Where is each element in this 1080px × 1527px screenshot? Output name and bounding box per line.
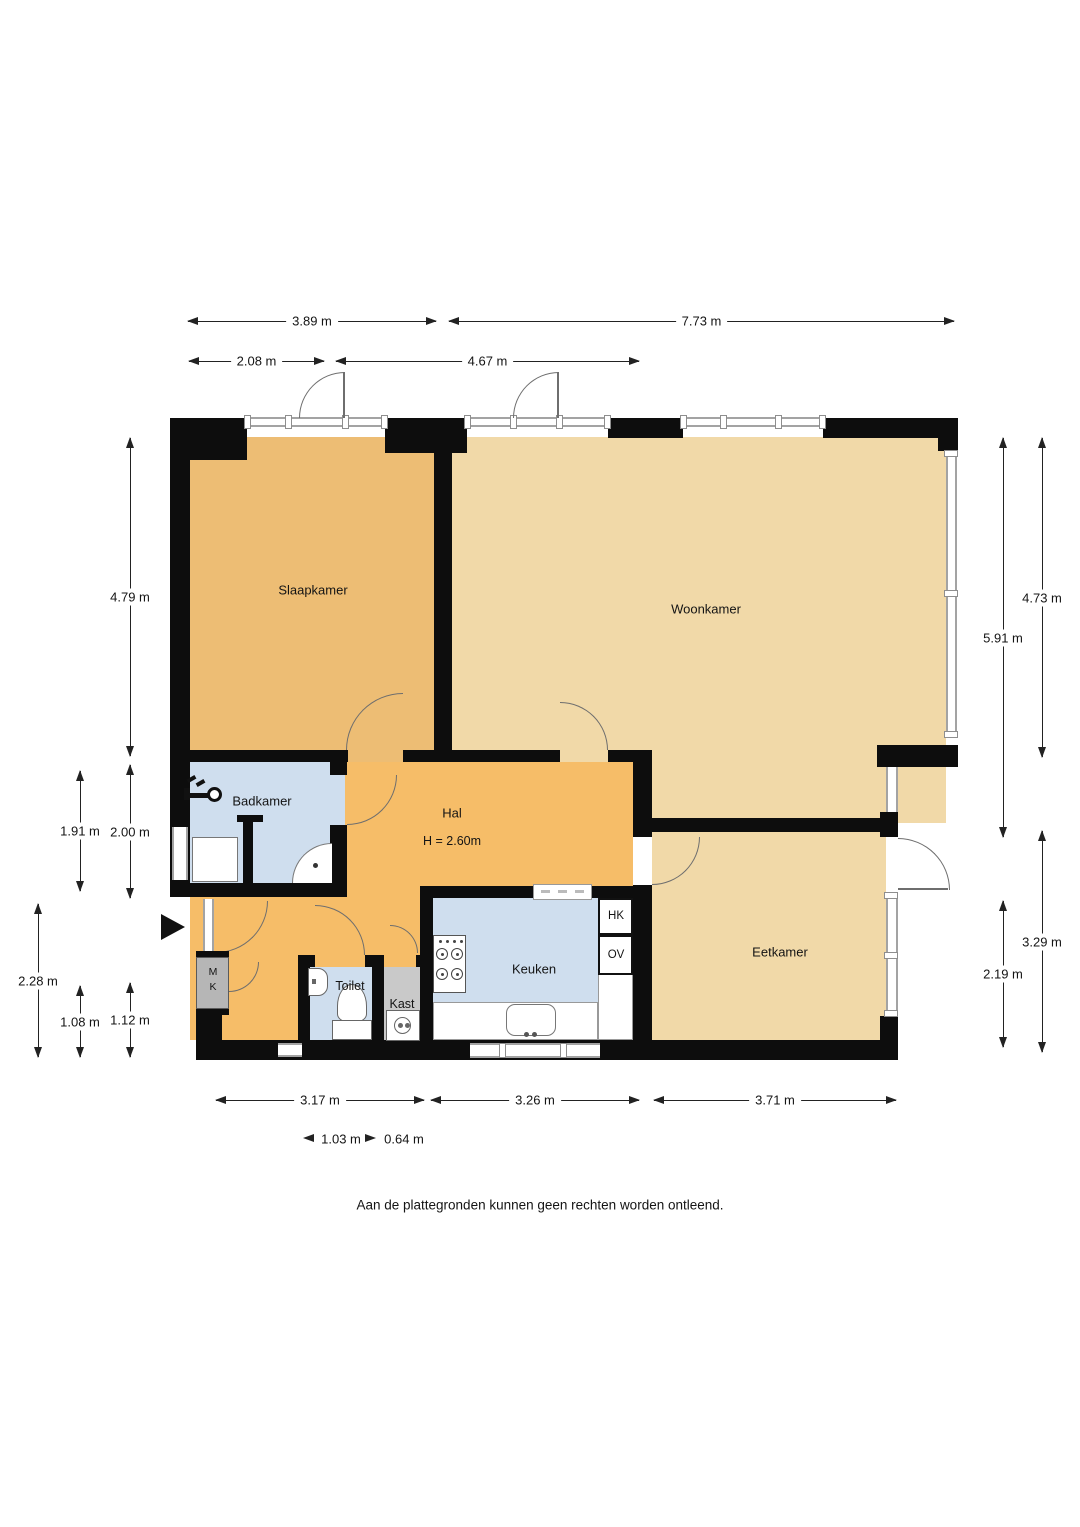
dimension-left-3: 2.00 m <box>126 764 135 899</box>
window-mullion <box>884 1010 898 1017</box>
dimension-arrow-right <box>365 1134 376 1142</box>
meter-cabinet-cap <box>196 1009 229 1015</box>
meter-cabinet-label-m: M <box>209 966 218 978</box>
room-label-hal: Hal <box>442 806 462 821</box>
window-mullion <box>884 952 898 959</box>
dimension-label: 7.73 m <box>676 314 728 329</box>
window-mullion <box>775 415 782 429</box>
cupboard-label-hk: HK <box>608 910 624 922</box>
dimension-top-2: 7.73 m <box>448 317 955 326</box>
room-label-woonkamer: Woonkamer <box>671 602 741 617</box>
dimension-label: 3.26 m <box>509 1093 561 1108</box>
dimension-top-4: 4.67 m <box>335 357 640 366</box>
dimension-left-1: 4.79 m <box>126 437 135 757</box>
room-label-toilet: Toilet <box>335 979 364 993</box>
room-label-badkamer: Badkamer <box>232 794 291 809</box>
window-mullion <box>944 450 958 457</box>
wall <box>170 883 347 897</box>
door-leaf <box>343 372 345 418</box>
wall <box>633 750 652 837</box>
dimension-left-6: 1.12 m <box>126 982 135 1058</box>
door-leaf <box>557 372 559 418</box>
window-mullion <box>720 415 727 429</box>
window-mullion <box>944 731 958 738</box>
wall <box>420 886 433 1040</box>
dimension-label: 1.03 m <box>321 1132 361 1147</box>
dimension-right-1: 4.73 m <box>1038 437 1047 758</box>
wall <box>403 750 560 762</box>
wall <box>652 818 886 832</box>
door-arc <box>898 838 950 890</box>
dimension-label: 3.17 m <box>294 1093 346 1108</box>
meter-cabinet-label-k: K <box>209 981 216 993</box>
dimension-label: 3.29 m <box>1017 933 1067 950</box>
window <box>683 417 823 427</box>
door-arc <box>299 372 345 418</box>
door-arc <box>513 372 559 418</box>
bath <box>192 837 238 882</box>
wall <box>608 418 683 438</box>
dimension-label: 3.89 m <box>286 314 338 329</box>
window-mullion <box>560 1043 567 1058</box>
dimension-label: 4.67 m <box>462 354 514 369</box>
wall <box>938 418 958 451</box>
wall <box>877 745 958 767</box>
door-leaf <box>898 888 948 890</box>
dimension-label: 1.12 m <box>105 1012 155 1029</box>
dimension-right-3: 3.29 m <box>1038 830 1047 1053</box>
window-mullion <box>604 415 611 429</box>
dimension-label: 5.91 m <box>978 629 1028 646</box>
dimension-top-3: 2.08 m <box>188 357 325 366</box>
window-mullion <box>244 415 251 429</box>
stove-icon <box>433 935 466 993</box>
window-mullion <box>285 415 292 429</box>
dimension-left-2: 1.91 m <box>76 770 85 892</box>
dimension-label: 1.91 m <box>55 823 105 840</box>
sink-icon <box>184 775 224 805</box>
window <box>172 827 188 880</box>
window <box>247 417 385 427</box>
dimension-label: 4.79 m <box>105 589 155 606</box>
window <box>278 1043 302 1057</box>
wall <box>196 1015 222 1042</box>
window-mullion <box>819 415 826 429</box>
dimension-label: 3.71 m <box>749 1093 801 1108</box>
dimension-label: 0.64 m <box>384 1132 424 1147</box>
room-floor-slaapkamer <box>190 437 452 768</box>
dimension-label: 2.28 m <box>13 972 63 989</box>
wall <box>372 955 384 1040</box>
hand-basin-icon <box>308 968 328 996</box>
window-mullion <box>499 1043 506 1058</box>
dimension-label: 1.08 m <box>55 1013 105 1030</box>
window-mullion <box>464 415 471 429</box>
room-label-keuken: Keuken <box>512 962 556 977</box>
cupboard-label-ov: OV <box>608 949 625 961</box>
window-mullion <box>381 415 388 429</box>
window-mullion <box>884 892 898 899</box>
wall <box>170 750 348 762</box>
dimension-left-4: 2.28 m <box>34 903 43 1058</box>
room-label-kast: Kast <box>389 997 414 1011</box>
faucet-icon <box>522 1032 540 1038</box>
dimension-arrow-left <box>303 1134 314 1142</box>
room-label-hal-height: H = 2.60m <box>423 834 481 848</box>
wall <box>434 453 452 762</box>
wall <box>243 815 253 883</box>
entrance-arrow-icon <box>161 914 185 940</box>
wall <box>880 1016 898 1040</box>
floorplan-page: M K S <box>0 0 1080 1527</box>
window-mullion <box>944 590 958 597</box>
toilet-cistern <box>332 1020 372 1040</box>
dimension-label: 2.00 m <box>105 823 155 840</box>
shower-drain <box>313 863 318 868</box>
dimension-label: 4.73 m <box>1017 589 1067 606</box>
dimension-left-5: 1.08 m <box>76 985 85 1058</box>
window <box>886 767 898 812</box>
disclaimer-text: Aan de plattegronden kunnen geen rechten… <box>356 1198 723 1213</box>
dimension-bottom-1: 3.17 m <box>215 1096 425 1105</box>
room-label-slaapkamer: Slaapkamer <box>278 583 347 598</box>
wall <box>633 885 652 1040</box>
window <box>467 417 608 427</box>
dimension-right-4: 2.19 m <box>999 900 1008 1048</box>
dimension-right-2: 5.91 m <box>999 437 1008 838</box>
window <box>470 1043 600 1058</box>
window-mullion <box>680 415 687 429</box>
wall <box>330 762 347 775</box>
dimension-bottom-3: 3.71 m <box>653 1096 897 1105</box>
room-label-eetkamer: Eetkamer <box>752 945 808 960</box>
dimension-bottom-2: 3.26 m <box>430 1096 640 1105</box>
wall <box>237 815 263 822</box>
dimension-label: 2.19 m <box>978 966 1028 983</box>
wall <box>385 418 467 453</box>
front-door <box>203 899 214 953</box>
boiler-icon <box>386 1010 420 1041</box>
dimension-top-1: 3.89 m <box>187 317 437 326</box>
kitchen-pass-through <box>533 884 592 900</box>
dimension-label: 2.08 m <box>231 354 283 369</box>
wall <box>298 955 315 967</box>
